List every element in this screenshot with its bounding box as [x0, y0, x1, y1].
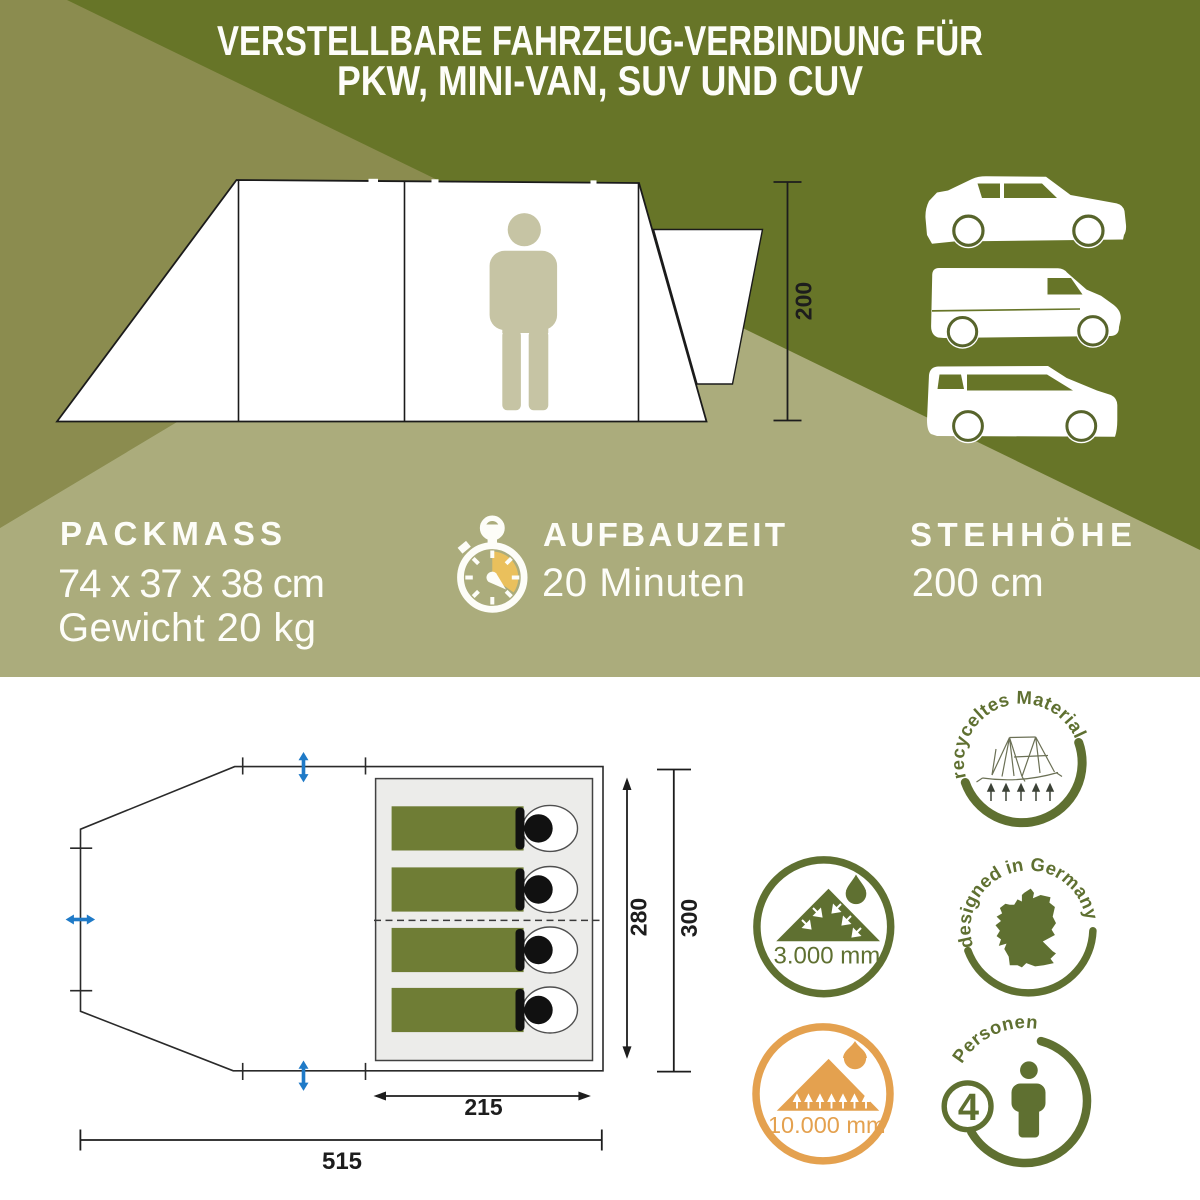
svg-text:STEHHÖHE: STEHHÖHE: [910, 516, 1132, 553]
svg-text:200 cm: 200 cm: [912, 561, 1044, 605]
svg-text:AUFBAUZEIT: AUFBAUZEIT: [543, 516, 785, 553]
svg-text:200: 200: [791, 282, 817, 320]
svg-text:20 Minuten: 20 Minuten: [542, 561, 745, 605]
svg-text:4: 4: [958, 1087, 979, 1129]
svg-text:3.000 mm: 3.000 mm: [774, 943, 881, 970]
svg-text:PKW, MINI-VAN, SUV UND CUV: PKW, MINI-VAN, SUV UND CUV: [337, 57, 863, 104]
svg-text:Gewicht 20 kg: Gewicht 20 kg: [58, 606, 316, 650]
svg-text:515: 515: [322, 1148, 362, 1175]
svg-text:300: 300: [676, 899, 702, 937]
svg-text:280: 280: [626, 898, 652, 936]
svg-text:10.000 mm: 10.000 mm: [768, 1112, 886, 1138]
svg-text:215: 215: [464, 1094, 503, 1120]
svg-text:PACKMASS: PACKMASS: [60, 515, 282, 552]
svg-text:74 x 37 x 38 cm: 74 x 37 x 38 cm: [58, 562, 325, 606]
